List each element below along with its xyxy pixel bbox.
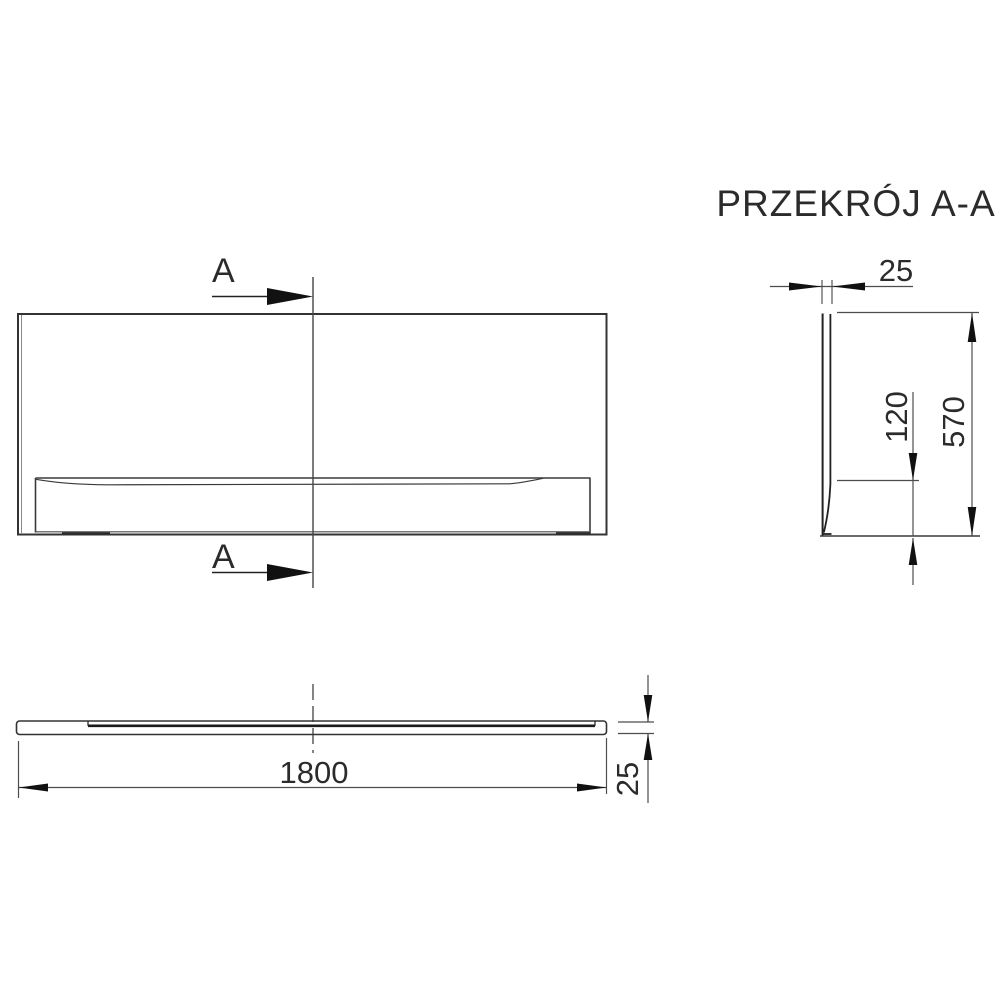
arrowhead-icon bbox=[644, 695, 653, 722]
arrowhead-icon bbox=[19, 784, 49, 792]
arrowhead-icon bbox=[909, 538, 918, 565]
dimension-depth-25: 25 bbox=[610, 675, 654, 803]
drawing-canvas: PRZEKRÓJ A-A A A bbox=[0, 0, 1000, 1000]
section-marker-bottom: A bbox=[212, 538, 313, 581]
section-marker-top: A bbox=[212, 252, 313, 305]
dimension-thickness-25: 25 bbox=[770, 253, 913, 304]
dimension-value: 1800 bbox=[280, 755, 349, 790]
arrowhead-icon bbox=[968, 507, 977, 536]
section-view: 25 570 120 bbox=[770, 253, 980, 585]
arrowhead-icon bbox=[968, 313, 977, 342]
dimension-value: 25 bbox=[610, 762, 645, 796]
section-marker-bottom-label: A bbox=[212, 538, 235, 576]
section-marker-top-label: A bbox=[212, 252, 235, 290]
plan-outline bbox=[17, 721, 607, 735]
profile-inner-line bbox=[824, 314, 831, 533]
arrowhead-icon bbox=[644, 734, 653, 761]
dimension-recess-120: 120 bbox=[837, 391, 919, 585]
section-title: PRZEKRÓJ A-A bbox=[716, 183, 995, 224]
arrowhead-icon bbox=[577, 784, 607, 792]
dimension-value: 120 bbox=[879, 391, 914, 443]
marker-arrowhead-icon bbox=[267, 564, 313, 581]
technical-drawing-page: PRZEKRÓJ A-A A A bbox=[0, 0, 1000, 1000]
front-view bbox=[18, 314, 607, 535]
arrowhead-icon bbox=[789, 283, 822, 291]
dimension-value: 570 bbox=[936, 396, 971, 448]
dimension-value: 25 bbox=[879, 253, 913, 288]
dimension-length-1800: 1800 bbox=[19, 738, 607, 798]
plan-view: 1800 25 bbox=[17, 675, 655, 803]
marker-arrowhead-icon bbox=[267, 288, 313, 305]
arrowhead-icon bbox=[909, 453, 918, 481]
panel-outline bbox=[18, 314, 607, 535]
arrowhead-icon bbox=[832, 283, 865, 291]
